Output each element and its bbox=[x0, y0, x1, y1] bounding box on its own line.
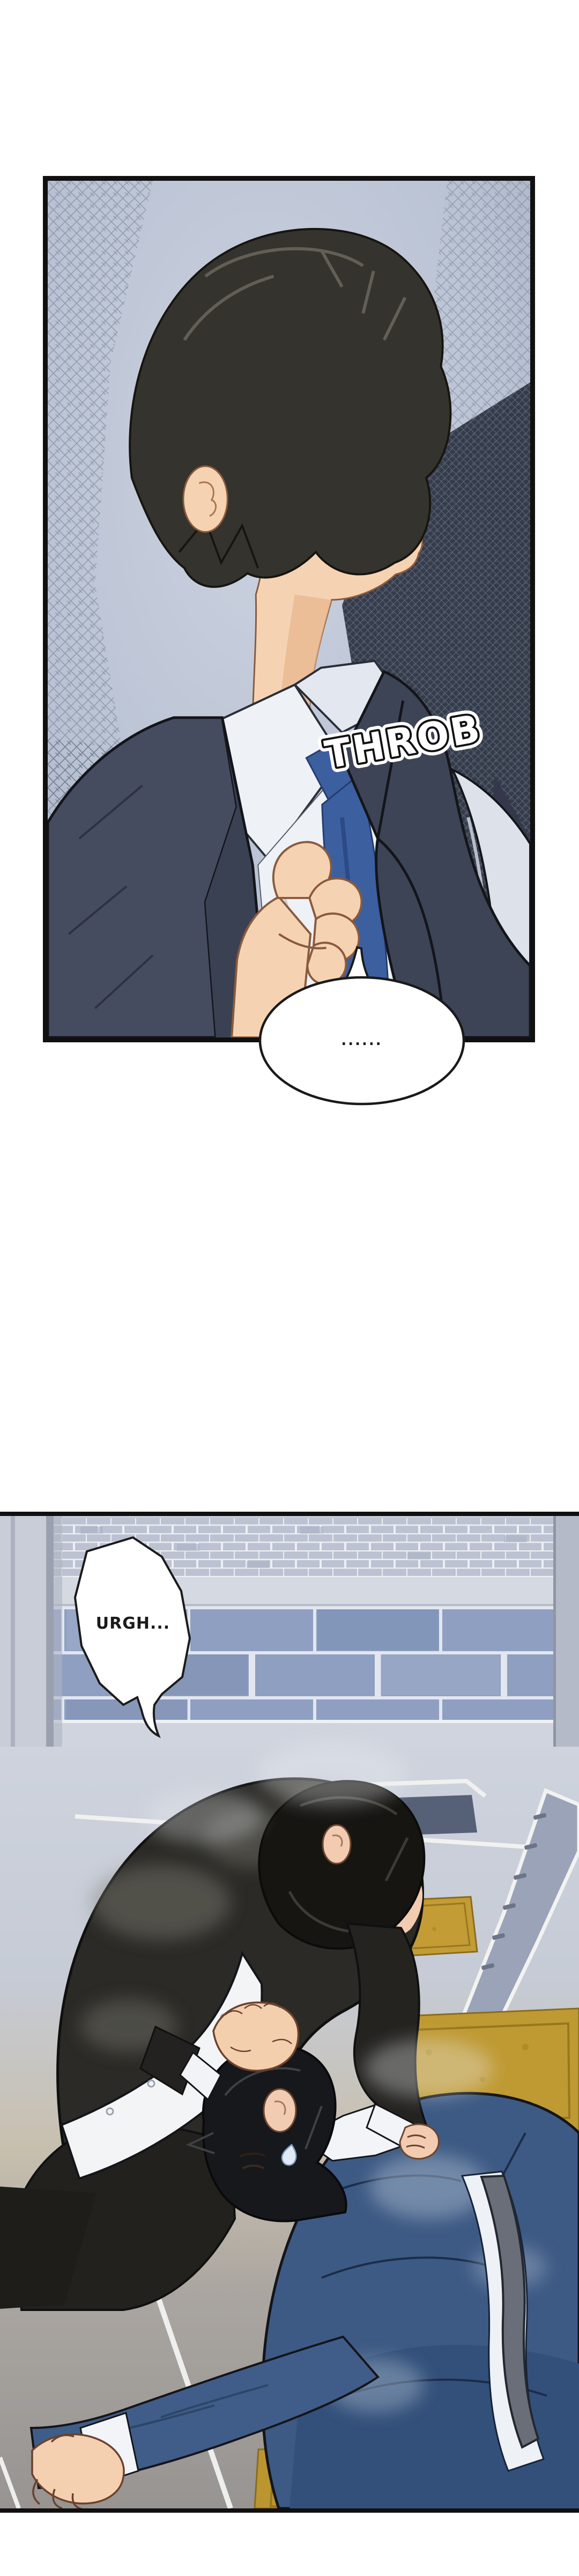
speech-bubble-ellipsis: ...... bbox=[252, 943, 477, 1110]
panel-1: THROB THROB bbox=[43, 176, 535, 1042]
ear bbox=[264, 2089, 296, 2132]
grabbing-hand bbox=[400, 2124, 439, 2159]
bubble-urgh-text: URGH... bbox=[96, 1614, 170, 1633]
panel-2-art: URGH... bbox=[0, 1516, 579, 2508]
wall-right-frame bbox=[555, 1516, 579, 1747]
bubble-ellipsis-text: ...... bbox=[341, 1033, 382, 1049]
comic-page: THROB THROB ...... bbox=[0, 0, 579, 2576]
ear bbox=[323, 1825, 351, 1864]
panel-1-art: THROB THROB bbox=[48, 181, 530, 1037]
panel-2: URGH... bbox=[0, 1512, 579, 2513]
ear bbox=[183, 466, 227, 532]
hair bbox=[203, 2045, 346, 2221]
black-suit-man-head bbox=[259, 1781, 424, 1948]
